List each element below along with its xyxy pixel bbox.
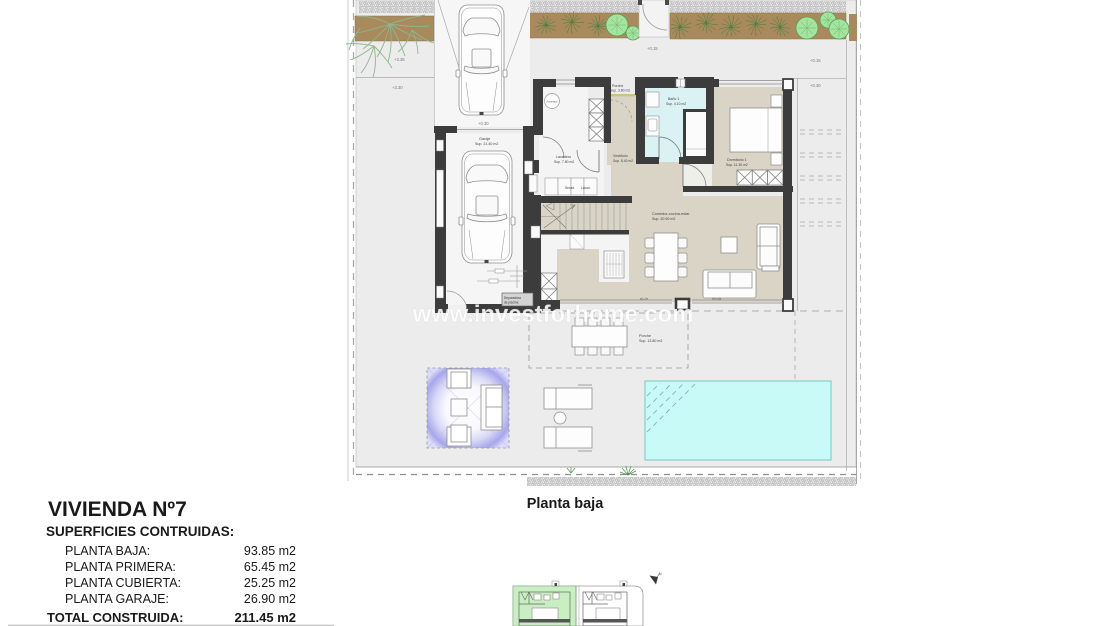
svg-text:Secad.: Secad. — [565, 186, 575, 190]
svg-text:+3.30: +3.30 — [392, 85, 403, 90]
svg-text:Sup. 21.40 m2: Sup. 21.40 m2 — [475, 142, 498, 146]
svg-text:Ascensor: Ascensor — [547, 100, 558, 104]
svg-text:Sup. 30.90 m2: Sup. 30.90 m2 — [652, 217, 675, 221]
svg-text:Dormitorio 1: Dormitorio 1 — [727, 158, 747, 162]
svg-text:Sup. 3.80 m2: Sup. 3.80 m2 — [610, 89, 630, 93]
svg-text:VIVIENDA Nº7: VIVIENDA Nº7 — [48, 498, 187, 521]
svg-text:Sup. 4.10 m2: Sup. 4.10 m2 — [666, 102, 686, 106]
svg-text:Sup. 13.80 m2: Sup. 13.80 m2 — [639, 339, 662, 343]
svg-text:Sup. 11.30 m2: Sup. 11.30 m2 — [726, 163, 748, 167]
svg-text:+0.15: +0.15 — [810, 58, 821, 63]
svg-text:Lavad.: Lavad. — [581, 186, 591, 190]
svg-text:Planta baja: Planta baja — [527, 496, 604, 512]
svg-text:PLANTA CUBIERTA:: PLANTA CUBIERTA: — [65, 576, 181, 590]
svg-text:www.investforhome.com: www.investforhome.com — [412, 301, 694, 328]
svg-text:SUPERFICIES CONTRUIDAS:: SUPERFICIES CONTRUIDAS: — [46, 524, 234, 539]
svg-text:+0.15: +0.15 — [647, 46, 658, 51]
svg-text:Sup. 8.40 m2: Sup. 8.40 m2 — [613, 159, 633, 163]
svg-text:25.25 m2: 25.25 m2 — [244, 576, 296, 590]
svg-text:Vestíbulo: Vestíbulo — [613, 154, 628, 158]
svg-text:Depuradora: Depuradora — [504, 296, 521, 300]
svg-text:Sup. 7.80 m2: Sup. 7.80 m2 — [554, 160, 574, 164]
svg-text:26.90 m2: 26.90 m2 — [244, 592, 296, 606]
svg-text:+0.30: +0.30 — [810, 83, 821, 88]
svg-text:Baño 1: Baño 1 — [668, 97, 679, 101]
svg-text:65.45 m2: 65.45 m2 — [244, 560, 296, 574]
svg-text:PLANTA GARAJE:: PLANTA GARAJE: — [65, 592, 169, 606]
svg-text:TOTAL CONSTRUIDA:: TOTAL CONSTRUIDA: — [47, 610, 184, 625]
svg-text:93.85 m2: 93.85 m2 — [244, 544, 296, 558]
svg-text:Lavadero: Lavadero — [556, 155, 571, 159]
svg-text:PLANTA PRIMERA:: PLANTA PRIMERA: — [65, 560, 176, 574]
svg-text:211.45 m2: 211.45 m2 — [235, 610, 296, 625]
svg-text:Garaje: Garaje — [479, 137, 490, 141]
svg-text:Comedor-cocina-estar: Comedor-cocina-estar — [652, 212, 690, 216]
svg-text:Porche: Porche — [639, 334, 651, 338]
svg-text:PLANTA BAJA:: PLANTA BAJA: — [65, 544, 150, 558]
svg-text:Porche: Porche — [612, 84, 623, 88]
svg-text:+3.35: +3.35 — [394, 57, 405, 62]
svg-text:+0.30: +0.30 — [478, 121, 489, 126]
